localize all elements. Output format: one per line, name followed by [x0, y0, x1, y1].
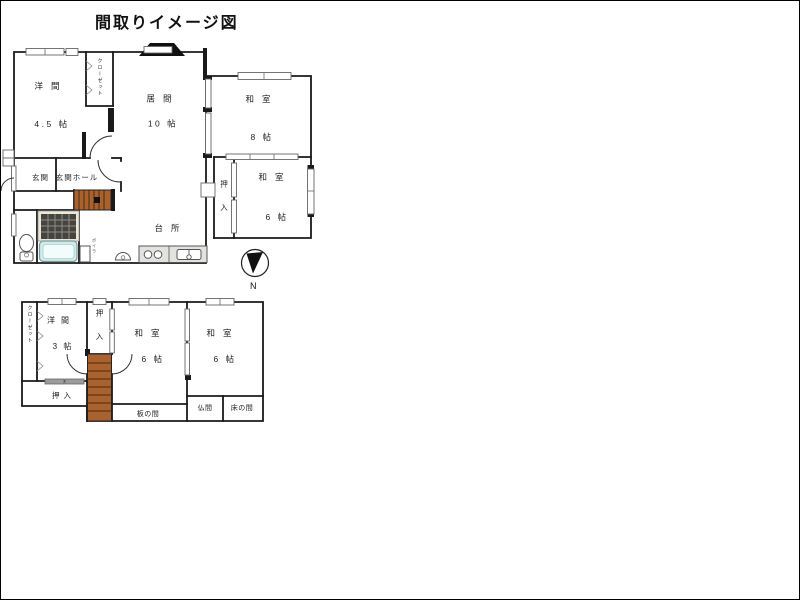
floorplan-page: 間取りイメージ図 — [0, 0, 800, 600]
room-label-tokonoma: 床の間 — [231, 403, 254, 412]
room-size-youma-1f: 4.5 帖 — [34, 119, 69, 129]
floor2-plan: クローゼット 洋間 3 帖 押入 和室 6 帖 和室 6 帖 押 入 板の間 仏… — [22, 299, 263, 422]
floor1-windows — [3, 49, 314, 237]
room-label-washitsu6b: 和室 — [206, 328, 239, 338]
label-boiler: ボイラ — [91, 237, 97, 255]
room-label-oshiire-low: 押 入 — [52, 390, 72, 400]
room-label-youma-1f: 洋間 — [34, 81, 67, 91]
floorplan-drawing: 洋間 4.5 帖 クローゼット 居間 10 帖 和室 8 帖 押入 和室 6 帖… — [1, 1, 799, 599]
room-label-washitsu8: 和室 — [245, 94, 278, 104]
room-label-closet-2f: クローゼット — [27, 305, 33, 344]
room-label-daidokoro: 台所 — [154, 223, 187, 233]
room-label-genkan-hall: 玄関ホール — [56, 172, 99, 182]
room-size-ima: 10 帖 — [148, 119, 178, 129]
compass-north-arrow: N — [242, 250, 269, 292]
room-label-oshiire-1f: 押入 — [219, 179, 228, 227]
room-label-closet-1f: クローゼット — [97, 58, 103, 97]
toilet — [20, 235, 34, 262]
room-size-washitsu8: 8 帖 — [250, 132, 273, 142]
floor1-plan: 洋間 4.5 帖 クローゼット 居間 10 帖 和室 8 帖 押入 和室 6 帖… — [1, 43, 314, 291]
room-size-washitsu6-1f: 6 帖 — [265, 212, 288, 222]
room-size-washitsu6b: 6 帖 — [213, 354, 236, 364]
floor1-door-arcs — [1, 136, 120, 191]
room-label-oshiire-stair: 押入 — [95, 308, 104, 356]
oshiire-sliding-door — [65, 379, 84, 384]
stove-burner — [144, 251, 152, 259]
bathtub-inner — [43, 245, 74, 259]
room-label-butsuma: 仏間 — [198, 404, 213, 412]
staircase-1f — [74, 190, 111, 210]
room-label-washitsu6a: 和室 — [134, 328, 167, 338]
bathroom-unit — [38, 211, 79, 262]
room-label-ima: 居間 — [146, 94, 179, 104]
room-label-washitsu6-1f: 和室 — [258, 172, 291, 182]
room-label-youma-2f: 洋間 — [47, 315, 75, 325]
compass-n-label: N — [250, 281, 257, 291]
bay-window — [139, 43, 185, 56]
room-size-youma-2f: 3 帖 — [53, 341, 74, 351]
kitchen-counter — [139, 246, 207, 263]
page-title: 間取りイメージ図 — [95, 9, 239, 33]
stove-burner — [154, 251, 162, 259]
staircase-2f — [88, 354, 112, 421]
room-label-genkan: 玄関 — [32, 172, 49, 182]
room-size-washitsu6a: 6 帖 — [141, 354, 164, 364]
round-sink — [116, 253, 131, 260]
floor2-windows — [45, 299, 234, 385]
boiler-box — [80, 246, 90, 262]
room-label-itanoma: 板の間 — [137, 409, 160, 418]
oshiire-sliding-door — [45, 379, 64, 384]
